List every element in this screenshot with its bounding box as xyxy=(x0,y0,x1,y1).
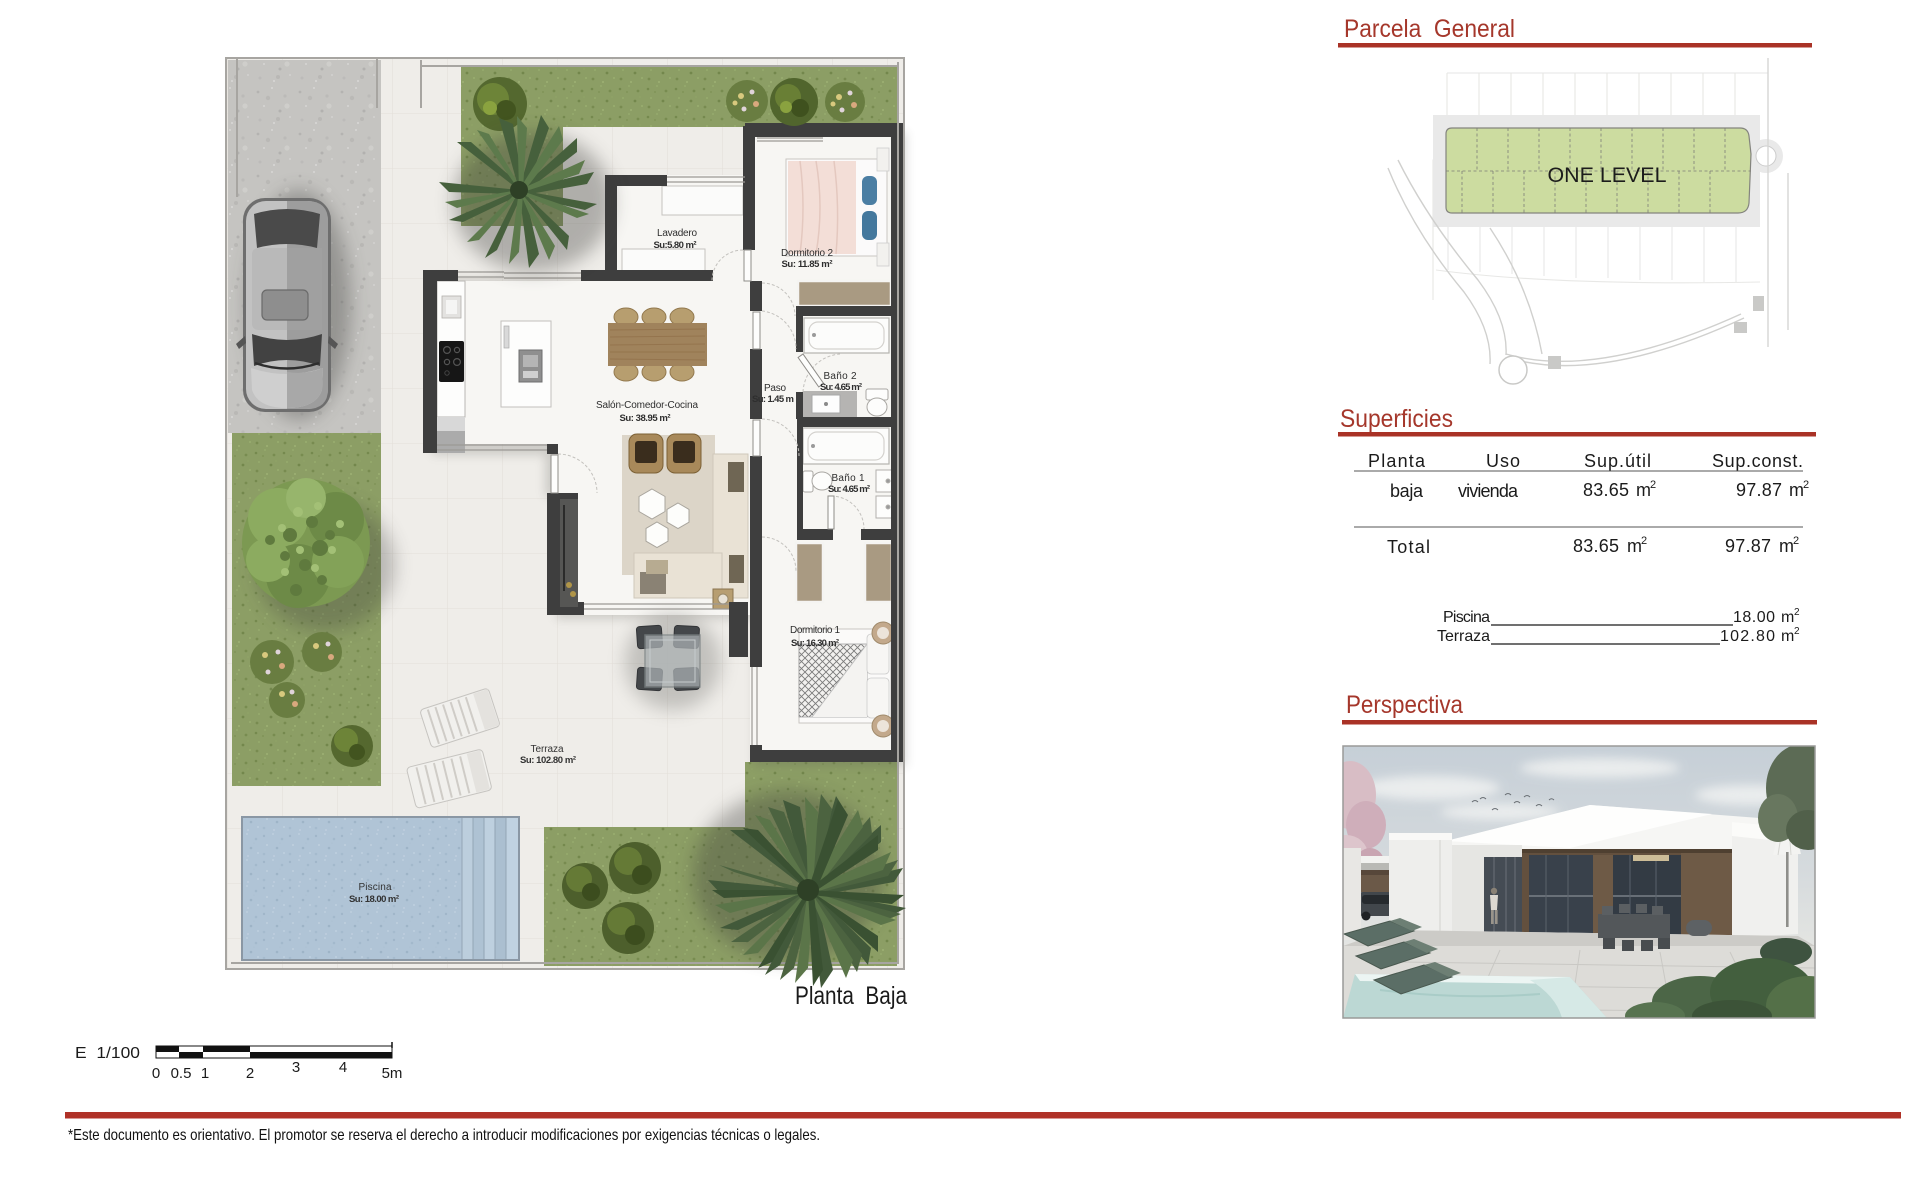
svg-text:2: 2 xyxy=(1793,535,1799,547)
svg-text:Paso: Paso xyxy=(764,383,786,394)
svg-text:Planta Baja: Planta Baja xyxy=(795,982,907,1010)
svg-text:1: 1 xyxy=(201,1065,209,1082)
svg-text:83.65: 83.65 xyxy=(1573,536,1620,556)
svg-text:2: 2 xyxy=(1794,626,1800,637)
svg-text:m: m xyxy=(1789,480,1804,500)
svg-text:m: m xyxy=(1781,628,1794,645)
svg-text:0.5: 0.5 xyxy=(171,1065,192,1082)
svg-text:Su: 11.85 m²: Su: 11.85 m² xyxy=(782,259,833,270)
svg-text:Parcela General: Parcela General xyxy=(1344,15,1515,43)
svg-text:Dormitorio 1: Dormitorio 1 xyxy=(790,625,840,636)
svg-text:E 1/100: E 1/100 xyxy=(75,1045,140,1062)
svg-text:m: m xyxy=(1636,480,1651,500)
svg-text:Su: 102.80 m²: Su: 102.80 m² xyxy=(520,755,576,766)
svg-text:Su: 1.45 m: Su: 1.45 m xyxy=(752,394,794,405)
svg-text:Sup.const.: Sup.const. xyxy=(1712,451,1803,471)
svg-text:vivienda: vivienda xyxy=(1458,481,1519,501)
svg-text:Su: 38.95 m²: Su: 38.95 m² xyxy=(620,413,671,424)
svg-text:Su:5.80 m²: Su:5.80 m² xyxy=(654,240,697,251)
svg-text:Piscina: Piscina xyxy=(359,882,392,893)
svg-text:2: 2 xyxy=(1641,535,1647,547)
svg-text:Su: 16.30 m²: Su: 16.30 m² xyxy=(791,638,839,649)
svg-text:0: 0 xyxy=(152,1065,160,1082)
svg-text:Baño 1: Baño 1 xyxy=(832,473,865,484)
svg-text:83.65: 83.65 xyxy=(1583,480,1630,500)
svg-text:18.00: 18.00 xyxy=(1733,609,1775,626)
svg-text:Dormitorio 2: Dormitorio 2 xyxy=(781,248,833,259)
svg-text:2: 2 xyxy=(1803,479,1809,491)
svg-text:Perspectiva: Perspectiva xyxy=(1346,691,1463,719)
svg-text:2: 2 xyxy=(1650,479,1656,491)
svg-text:4: 4 xyxy=(339,1059,347,1076)
svg-text:Su: 4.65 m²: Su: 4.65 m² xyxy=(820,382,862,393)
svg-text:Su: 4.65 m²: Su: 4.65 m² xyxy=(828,484,870,495)
svg-text:Lavadero: Lavadero xyxy=(657,228,697,239)
svg-text:Terraza: Terraza xyxy=(1437,628,1490,645)
svg-text:97.87: 97.87 xyxy=(1736,480,1783,500)
svg-text:2: 2 xyxy=(1794,607,1800,618)
svg-text:Sup.útil: Sup.útil xyxy=(1584,451,1651,471)
svg-text:Baño 2: Baño 2 xyxy=(824,371,857,382)
svg-text:Su: 18.00 m²: Su: 18.00 m² xyxy=(349,894,399,905)
svg-text:102.80: 102.80 xyxy=(1720,628,1775,645)
svg-text:*Este documento es orientativo: *Este documento es orientativo. El promo… xyxy=(68,1127,820,1144)
svg-text:2: 2 xyxy=(246,1065,254,1082)
svg-text:Salón-Comedor-Cocina: Salón-Comedor-Cocina xyxy=(596,400,698,411)
svg-text:baja: baja xyxy=(1390,481,1424,501)
svg-text:m: m xyxy=(1627,536,1642,556)
svg-text:Piscina: Piscina xyxy=(1443,609,1490,626)
svg-text:Planta: Planta xyxy=(1368,451,1426,471)
svg-text:m: m xyxy=(1781,609,1794,626)
svg-text:97.87: 97.87 xyxy=(1725,536,1772,556)
svg-text:Superficies: Superficies xyxy=(1340,405,1453,433)
svg-text:Total: Total xyxy=(1387,537,1430,557)
svg-text:3: 3 xyxy=(292,1059,300,1076)
svg-text:ONE LEVEL: ONE LEVEL xyxy=(1548,164,1667,187)
svg-text:5m: 5m xyxy=(382,1065,403,1082)
svg-text:Uso: Uso xyxy=(1486,451,1520,471)
svg-text:m: m xyxy=(1779,536,1794,556)
svg-text:Terraza: Terraza xyxy=(531,744,564,755)
